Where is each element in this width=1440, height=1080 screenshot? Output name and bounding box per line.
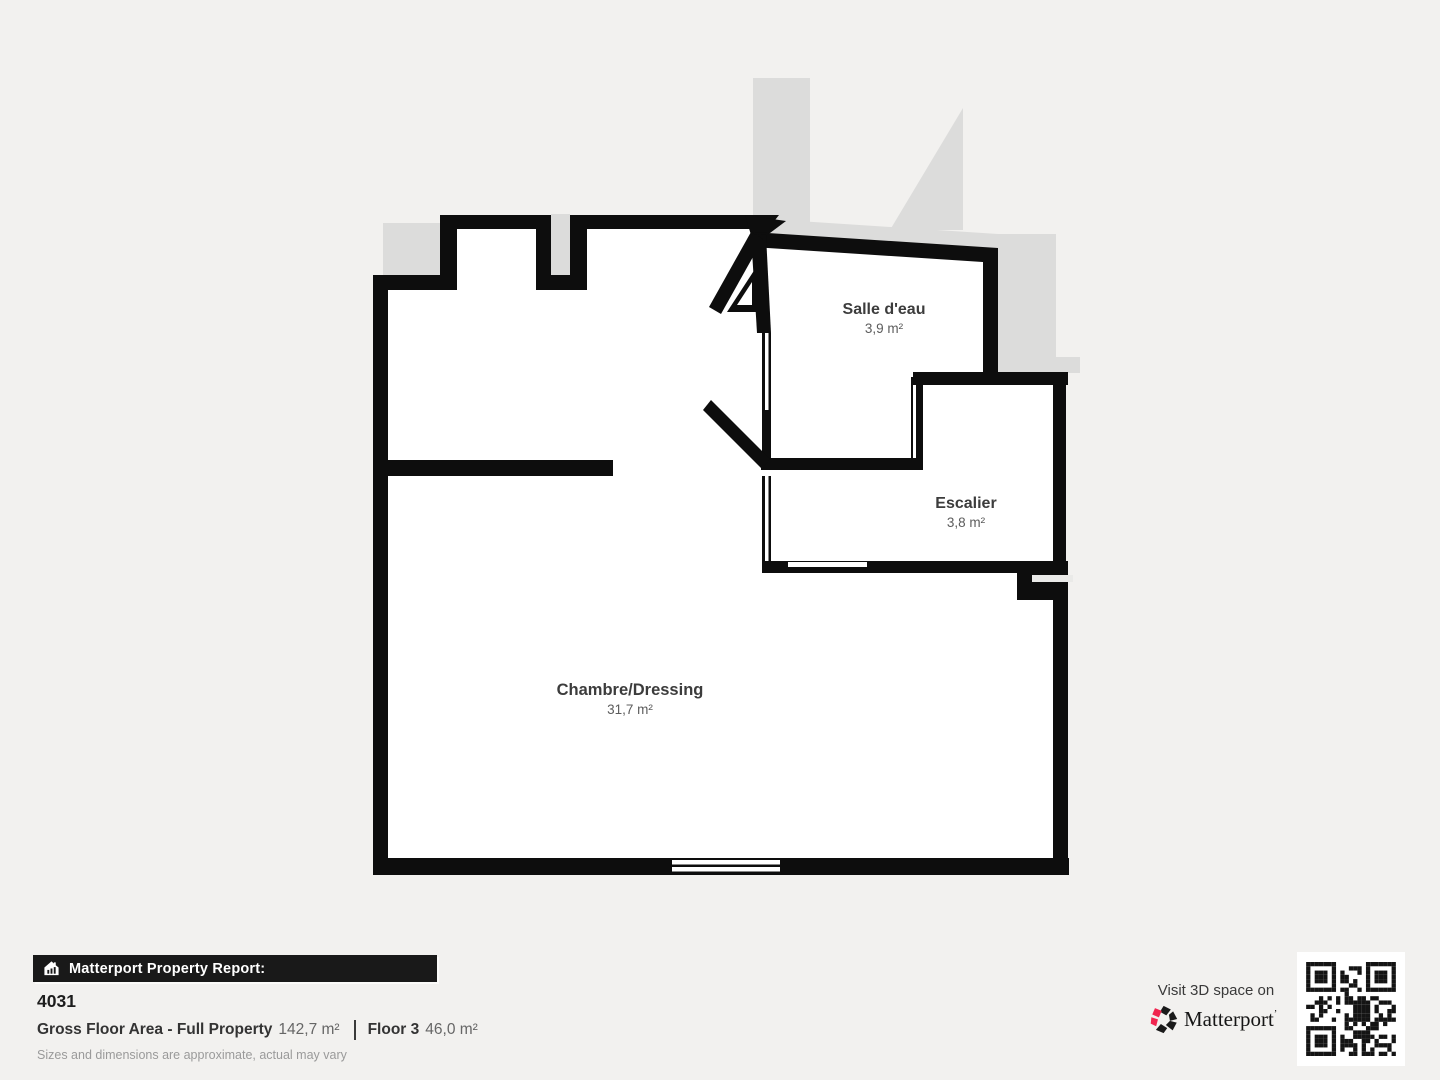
- adjacent-block-right-foot: [1056, 357, 1080, 373]
- escalier-opening-line-1: [762, 476, 765, 561]
- area-summary: Gross Floor Area - Full Property 142,7 m…: [37, 1020, 478, 1040]
- room-label-chambre: Chambre/Dressing: [557, 681, 704, 699]
- matterport-logo-icon: [1150, 1005, 1179, 1034]
- wall-salledeau-bottom: [761, 458, 923, 470]
- property-id: 4031: [37, 991, 76, 1012]
- house-report-icon: [43, 960, 60, 977]
- escalier-bottom-opening: [788, 562, 867, 567]
- room-area-escalier: 3,8 m²: [947, 515, 986, 530]
- window-marker-line-2: [672, 867, 780, 872]
- gross-floor-area-label: Gross Floor Area - Full Property: [37, 1021, 272, 1039]
- report-banner: Matterport Property Report:: [33, 955, 437, 982]
- right-wall-opening: [1032, 575, 1073, 582]
- room-area-chambre: 31,7 m²: [607, 702, 653, 717]
- footer: Matterport Property Report: 4031 Gross F…: [0, 940, 1440, 1080]
- adjacent-triangle: [890, 108, 963, 230]
- door-opening-line-1: [762, 333, 765, 413]
- matterport-logo-row: Matterport’: [1150, 1005, 1282, 1034]
- escalier-opening-line-2: [769, 476, 772, 561]
- room-label-salle-deau: Salle d'eau: [843, 301, 926, 318]
- adjacent-block-left: [383, 223, 441, 276]
- door-opening-line-2: [769, 333, 772, 413]
- adjacent-block-right: [998, 234, 1056, 372]
- room-label-escalier: Escalier: [935, 495, 996, 512]
- trademark-tick: ’: [1274, 1009, 1277, 1020]
- wall-topleft-v2: [536, 229, 551, 276]
- floor-label: Floor 3: [368, 1021, 420, 1039]
- visit-3d-text: Visit 3D space on: [1150, 982, 1282, 999]
- wall-interior: [373, 460, 613, 476]
- wall-top-1: [440, 215, 551, 229]
- adjacent-recess: [551, 214, 570, 276]
- disclaimer-text: Sizes and dimensions are approximate, ac…: [37, 1048, 347, 1062]
- wall-right-lower: [1053, 600, 1068, 858]
- report-banner-label: Matterport Property Report:: [69, 961, 265, 977]
- wall-left: [373, 275, 388, 875]
- gross-floor-area-value: 142,7 m²: [278, 1021, 339, 1039]
- wall-escalier-top: [913, 372, 1068, 385]
- floor-plan: Salle d'eau 3,9 m² Escalier 3,8 m² Chamb…: [0, 0, 1440, 940]
- window-marker-line-1: [672, 860, 780, 865]
- qr-code: [1297, 952, 1405, 1066]
- wall-salledeau-escalier: [916, 372, 923, 470]
- floor-value: 46,0 m²: [425, 1021, 478, 1039]
- divider: [354, 1020, 356, 1040]
- room-area-salle-deau: 3,9 m²: [865, 321, 904, 336]
- wall-salledeau-right: [983, 250, 998, 383]
- visit-3d-block: Visit 3D space on Matterport’: [1150, 982, 1282, 1034]
- wall-salledeau-escalier-line: [911, 377, 913, 465]
- matterport-wordmark: Matterport’: [1184, 1007, 1277, 1032]
- floor-areas: [388, 229, 1053, 858]
- wall-right-upper: [1053, 372, 1066, 572]
